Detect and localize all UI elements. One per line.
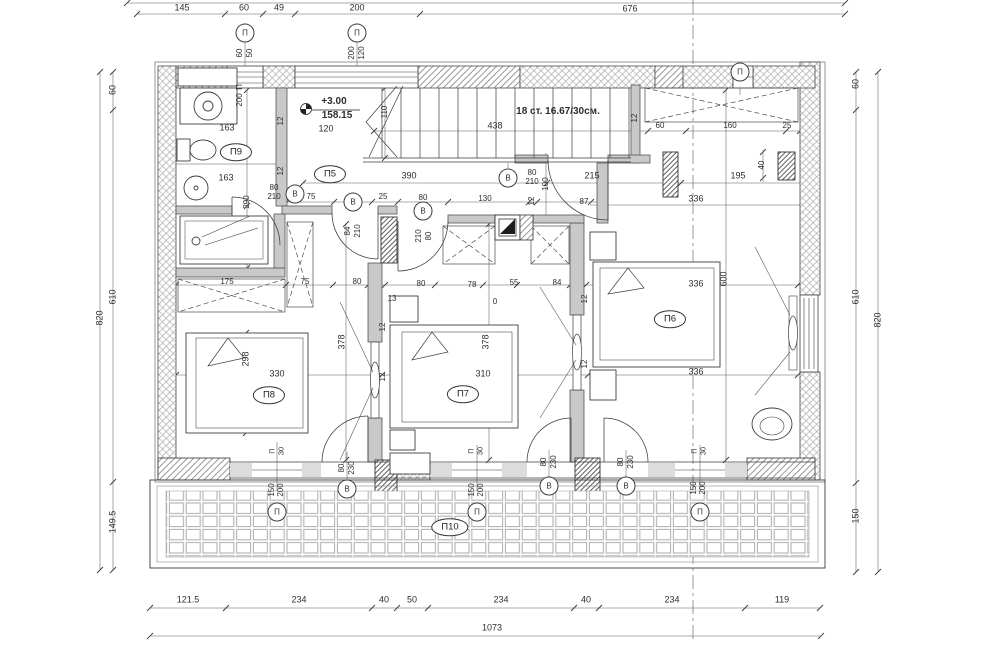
- dim: 75: [307, 193, 316, 201]
- dim: 100: [542, 177, 550, 190]
- parapet-pier-left: [158, 458, 230, 480]
- door-size: 210: [354, 224, 362, 237]
- dim: 438: [487, 122, 502, 131]
- dim: 820: [96, 310, 105, 325]
- window-mark: П: [348, 24, 367, 43]
- counter: [178, 68, 237, 86]
- dim: 84: [553, 279, 562, 287]
- dim: 40: [758, 161, 766, 170]
- shower-drain: [192, 237, 200, 245]
- dim: 110: [381, 106, 389, 119]
- dim: 50: [407, 596, 417, 605]
- room-label-П7: П7: [447, 385, 479, 403]
- dim: 1073: [482, 624, 502, 633]
- door-size: 230: [627, 455, 635, 468]
- door-mark: В: [499, 169, 518, 188]
- window-mark: П: [468, 503, 487, 522]
- door-mark: В: [338, 480, 357, 499]
- dim: 610: [852, 289, 861, 304]
- dim: 150: [852, 508, 861, 523]
- door-size: 210: [415, 229, 423, 242]
- parapet-pier-right: [747, 458, 815, 480]
- dim: 12: [277, 117, 285, 126]
- sill-mark: П: [268, 448, 276, 453]
- dim: 40: [379, 596, 389, 605]
- room-label-П5: П5: [314, 165, 346, 183]
- dim: 49: [274, 4, 284, 13]
- dim: 78: [468, 281, 477, 289]
- parapet: [230, 462, 815, 478]
- dim: 0: [493, 298, 497, 306]
- dim: 676: [622, 5, 637, 14]
- dim: 145: [174, 4, 189, 13]
- dim: 12: [277, 167, 285, 176]
- dim: 200: [349, 4, 364, 13]
- win-size: 200: [477, 483, 485, 496]
- toilet-tank: [177, 139, 190, 161]
- dim: 336: [688, 195, 703, 204]
- door-size: 80: [425, 232, 433, 241]
- door-size: 230: [348, 461, 356, 474]
- dim: 119: [775, 596, 789, 605]
- floor-plan-canvas: 1456049200676605020012082060610149.56061…: [0, 0, 1000, 666]
- dim: 40: [581, 596, 591, 605]
- window-mark: П: [236, 24, 255, 43]
- room-label-П10: П10: [431, 518, 468, 536]
- win-size: 60: [236, 49, 244, 58]
- dim: 12: [379, 373, 387, 382]
- dim: 175: [220, 278, 233, 286]
- window-mark: П: [268, 503, 287, 522]
- plan-linework: [0, 0, 1000, 666]
- dim: 378: [338, 334, 347, 349]
- dim: 330: [269, 370, 284, 379]
- room-label-П6: П6: [654, 310, 686, 328]
- dim: 60: [656, 122, 665, 130]
- dim: 25: [783, 122, 792, 130]
- dim: 610: [109, 289, 118, 304]
- armchair: [752, 408, 792, 440]
- room-label-П8: П8: [253, 386, 285, 404]
- dim: 234: [664, 596, 679, 605]
- win-size: 150: [468, 483, 476, 496]
- door-mark: В: [617, 477, 636, 496]
- door-size: 80: [338, 464, 346, 473]
- dim: 121.5: [177, 596, 200, 605]
- dim: 336: [688, 368, 703, 377]
- dim: 12: [581, 295, 589, 304]
- sill-mark: 30: [476, 447, 484, 455]
- dim: 163: [219, 124, 234, 133]
- dim: 298: [242, 351, 251, 366]
- door-size: 230: [550, 455, 558, 468]
- win-size: П: [236, 84, 244, 90]
- window-mark: П: [731, 63, 750, 82]
- door-size: 80: [528, 169, 537, 177]
- dim: 163: [218, 174, 233, 183]
- dim: 12: [528, 197, 536, 206]
- dim: 195: [730, 172, 745, 181]
- win-size: 120: [358, 46, 366, 59]
- win-size: 200: [348, 46, 356, 59]
- door-size: 84: [344, 227, 352, 236]
- dim: 290: [243, 195, 251, 208]
- dim: 149.5: [109, 511, 118, 534]
- door-mark: В: [344, 193, 363, 212]
- dim: 80: [417, 280, 426, 288]
- terrace: [150, 480, 825, 568]
- dim: 160: [723, 122, 736, 130]
- door-mark: В: [540, 477, 559, 496]
- stairs-note: 18 ст. 16.67/30см.: [516, 107, 600, 117]
- dim: 75: [301, 278, 310, 286]
- level-relative: +3.00: [321, 97, 346, 107]
- dim: 60: [109, 85, 118, 95]
- dim: 55: [510, 279, 519, 287]
- win-size: 200: [236, 93, 244, 106]
- dim: 12: [631, 114, 639, 123]
- sill-mark: 30: [699, 447, 707, 455]
- dim: 600: [720, 271, 729, 286]
- dim: 25: [379, 193, 388, 201]
- dim: 215: [584, 172, 599, 181]
- dim: 130: [478, 195, 491, 203]
- window-mark: П: [691, 503, 710, 522]
- dim: 378: [482, 334, 491, 349]
- win-size: 200: [699, 481, 707, 494]
- door-size: 80: [540, 458, 548, 467]
- door-size: 80: [270, 184, 279, 192]
- win-size: 150: [690, 481, 698, 494]
- dim: 234: [291, 596, 306, 605]
- dim: 120: [318, 125, 333, 134]
- level-absolute: 158.15: [322, 111, 353, 121]
- win-size: 150: [268, 483, 276, 496]
- dim: 80: [353, 278, 362, 286]
- sill-mark: 30: [277, 447, 285, 455]
- dim: 60: [239, 4, 249, 13]
- toilet-bowl: [190, 140, 216, 160]
- door-size: 210: [267, 193, 280, 201]
- door-mark: В: [286, 185, 305, 204]
- dim: 234: [493, 596, 508, 605]
- room-label-П9: П9: [220, 143, 252, 161]
- dim: 390: [401, 172, 416, 181]
- door-size: 210: [525, 178, 538, 186]
- sill-mark: П: [690, 448, 698, 453]
- bathroom-fixtures: [177, 68, 268, 264]
- dim: 12: [379, 323, 387, 332]
- dim: 12: [581, 360, 589, 369]
- dim: 13: [388, 295, 397, 303]
- win-size: 200: [277, 483, 285, 496]
- dim: 820: [874, 312, 883, 327]
- dim: 87: [580, 198, 589, 206]
- dim: 60: [852, 79, 861, 89]
- dim: 310: [475, 370, 490, 379]
- dim: 336: [688, 280, 703, 289]
- flue: [495, 215, 533, 240]
- sill-mark: П: [467, 448, 475, 453]
- door-size: 80: [617, 458, 625, 467]
- win-size: 50: [246, 49, 254, 58]
- door-mark: В: [414, 202, 433, 221]
